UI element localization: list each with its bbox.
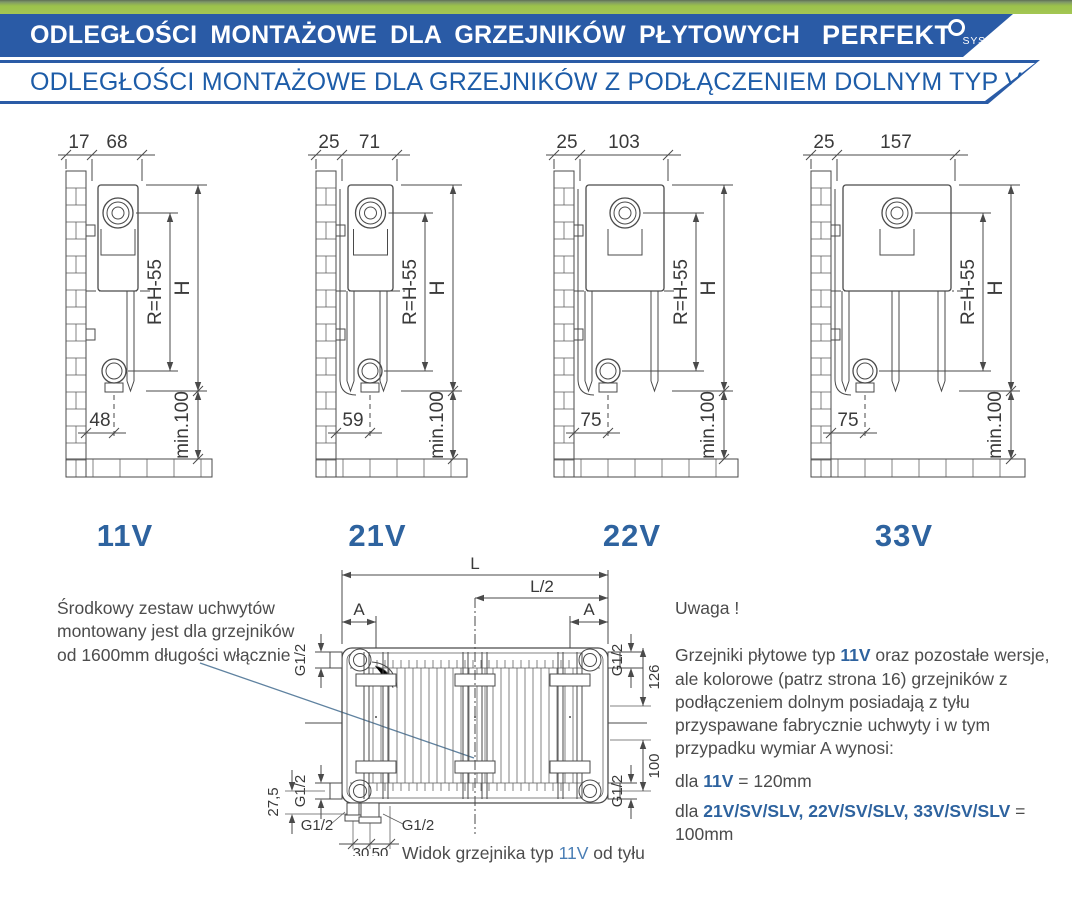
header-banner: ODLEGŁOŚCI MONTAŻOWE DLA GRZEJNIKÓW PŁYT…	[0, 14, 1072, 57]
subtitle-text: ODLEGŁOŚCI MONTAŻOWE DLA GRZEJNIKÓW Z PO…	[30, 60, 1072, 104]
uwaga-line-others: dla 21V/SV/SLV, 22V/SV/SLV, 33V/SV/SLV =…	[675, 800, 1067, 847]
diagram-33v-svg: 25157R=H-55Hmin.10075	[775, 133, 1033, 505]
panel-tip	[842, 381, 849, 391]
floor	[316, 459, 467, 477]
dim-label: 48	[89, 410, 110, 431]
panel-tip	[380, 381, 387, 391]
dim-arrow	[628, 774, 634, 783]
connection-circle	[349, 780, 371, 802]
connection-circle	[349, 649, 371, 671]
type-label-33v: 33V	[775, 518, 1033, 554]
dim-arrow	[1008, 185, 1014, 194]
return-circle	[600, 363, 616, 379]
bracket-dot	[474, 716, 476, 718]
return-circle	[857, 363, 873, 379]
dim-label: 100	[646, 753, 663, 778]
dim-arrow	[475, 595, 484, 601]
return-stub	[105, 383, 123, 392]
uwaga-para-type: 11V	[840, 645, 870, 665]
valve-housing	[880, 229, 914, 255]
valve-circle	[619, 207, 631, 219]
dim-label: G1/2	[609, 644, 626, 677]
radiator-header	[98, 185, 138, 291]
radiator-header	[348, 185, 393, 291]
dim-arrow	[195, 450, 201, 459]
valve-housing	[608, 229, 642, 255]
dim-label: G1/2	[292, 644, 309, 677]
dim-arrow	[640, 697, 646, 706]
valve-circle	[886, 202, 908, 224]
dim-arrow	[342, 619, 351, 625]
dim-label: 126	[646, 664, 663, 689]
uwaga-11v-types: 11V	[703, 771, 733, 791]
dim-label: 25	[813, 133, 834, 153]
dim-label: min.100	[698, 391, 719, 459]
diagram-22v-svg: 25103R=H-55Hmin.10075	[518, 133, 746, 505]
page-title: ODLEGŁOŚCI MONTAŻOWE DLA GRZEJNIKÓW PŁYT…	[30, 21, 800, 50]
dim-arrow	[318, 643, 324, 652]
type-label-11v: 11V	[30, 518, 220, 554]
dim-arrow	[318, 774, 324, 783]
dim-arrow	[980, 362, 986, 371]
valve-circle	[360, 202, 382, 224]
dim-arrow	[721, 382, 727, 391]
dim-arrow	[721, 391, 727, 400]
panel-tip	[938, 381, 945, 391]
dim-label: G1/2	[402, 817, 435, 834]
dim-label: 25	[318, 133, 339, 153]
dim-label: L	[470, 556, 479, 573]
dim-label: 75	[837, 410, 858, 431]
logo-subtext: SYSTEM	[963, 35, 1011, 47]
dim-label: min.100	[172, 391, 193, 459]
dim-arrow	[318, 799, 324, 808]
dim-label: 75	[580, 410, 601, 431]
dim-label: 71	[359, 133, 380, 153]
green-strip	[0, 0, 1072, 14]
type-label-22v: 22V	[518, 518, 746, 554]
dim-arrow	[422, 213, 428, 222]
wall-bracket	[86, 225, 95, 236]
dim-label: 68	[106, 133, 127, 153]
dim-arrow	[450, 391, 456, 400]
uwaga-title: Uwaga !	[675, 597, 1067, 620]
return-stub	[856, 383, 874, 392]
dim-arrow	[167, 362, 173, 371]
uwaga-11v-pre: dla	[675, 771, 703, 791]
dim-arrow	[980, 213, 986, 222]
dim-label: min.100	[427, 391, 448, 459]
dim-label: 27,5	[265, 787, 282, 816]
dim-label: R=H-55	[400, 259, 421, 325]
dim-arrow	[693, 362, 699, 371]
dim-arrow	[628, 643, 634, 652]
dim-arrow	[167, 213, 173, 222]
dim-label: H	[171, 280, 194, 295]
uwaga-para-pre: Grzejniki płytowe typ	[675, 645, 840, 665]
panel-tip	[585, 381, 592, 391]
dim-arrow	[318, 668, 324, 677]
bracket-dot	[569, 716, 571, 718]
dim-arrow	[599, 619, 608, 625]
floor	[554, 459, 738, 477]
connection-flange	[330, 652, 342, 668]
dim-label: A	[583, 600, 595, 619]
valve-circle	[365, 207, 377, 219]
bottom-stub	[347, 803, 359, 815]
stub-leader	[383, 814, 403, 824]
dim-arrow	[721, 450, 727, 459]
dim-arrow	[570, 619, 579, 625]
floor	[811, 459, 1025, 477]
dim-label: G1/2	[301, 817, 334, 834]
valve-circle	[107, 202, 129, 224]
dim-arrow	[1008, 382, 1014, 391]
dim-arrow	[450, 382, 456, 391]
dim-arrow	[628, 799, 634, 808]
dim-label: H	[984, 280, 1007, 295]
diagram-33v: 25157R=H-55Hmin.10075 33V	[775, 133, 1033, 554]
floor	[66, 459, 212, 477]
caption-type: 11V	[559, 843, 589, 863]
dim-label: 103	[608, 133, 640, 153]
dim-label: R=H-55	[958, 259, 979, 325]
connection-flange	[330, 783, 342, 799]
caption-post: od tyłu	[588, 843, 644, 863]
dim-label: 50	[372, 845, 389, 856]
panel-tip	[651, 381, 658, 391]
dim-arrow	[599, 572, 608, 578]
uwaga-11v-post: = 120mm	[733, 771, 811, 791]
dim-label: R=H-55	[671, 259, 692, 325]
bracket-plate	[550, 761, 590, 773]
uwaga-others-pre: dla	[675, 801, 703, 821]
diagram-11v: 1768R=H-55Hmin.10048 11V	[30, 133, 220, 554]
dim-arrow	[640, 740, 646, 749]
dim-label: 17	[68, 133, 89, 153]
dim-label: 157	[880, 133, 912, 153]
panel-tip	[127, 381, 134, 391]
uwaga-block: Uwaga ! Grzejniki płytowe typ 11V oraz p…	[675, 597, 1067, 846]
dim-label: L/2	[530, 577, 554, 596]
dim-label: H	[697, 280, 720, 295]
dim-arrow	[693, 213, 699, 222]
valve-housing	[101, 229, 135, 255]
valve-circle	[112, 207, 124, 219]
dim-arrow	[195, 382, 201, 391]
bracket-plate	[356, 761, 396, 773]
logo-text: PERFEKT	[822, 22, 952, 49]
bottom-stub-flange	[359, 817, 381, 823]
page: ODLEGŁOŚCI MONTAŻOWE DLA GRZEJNIKÓW PŁYT…	[0, 0, 1072, 898]
dim-arrow	[195, 185, 201, 194]
radiator-header	[843, 185, 951, 291]
dim-arrow	[1008, 391, 1014, 400]
wall-bracket	[86, 329, 95, 340]
panel-tip	[892, 381, 899, 391]
bracket-plate	[356, 674, 396, 686]
dim-label: R=H-55	[145, 259, 166, 325]
bottom-stub	[361, 803, 379, 817]
type-label-21v: 21V	[280, 518, 475, 554]
dim-arrow	[195, 391, 201, 400]
valve-circle	[614, 202, 636, 224]
dim-arrow	[422, 362, 428, 371]
diagram-21v-svg: 2571R=H-55Hmin.10059	[280, 133, 475, 505]
dim-arrow	[628, 668, 634, 677]
dim-label: 30	[353, 845, 370, 856]
dim-arrow	[289, 814, 295, 823]
rear-view-caption: Widok grzejnika typ 11V od tyłu	[402, 843, 645, 864]
dim-label: min.100	[985, 391, 1006, 459]
uwaga-line-11v: dla 11V = 120mm	[675, 770, 1067, 793]
rear-view-svg: LL/2AAG1/2G1/227,5G1/2126G1/2100G1/2G1/2…	[265, 556, 670, 856]
dim-arrow	[640, 782, 646, 791]
dim-arrow	[450, 185, 456, 194]
dim-arrow	[721, 185, 727, 194]
dim-label: H	[426, 280, 449, 295]
valve-housing	[354, 229, 388, 255]
dim-arrow	[342, 572, 351, 578]
return-circle	[106, 363, 122, 379]
diagram-21v: 2571R=H-55Hmin.10059 21V	[280, 133, 475, 554]
caption-pre: Widok grzejnika typ	[402, 843, 559, 863]
valve-circle	[891, 207, 903, 219]
dim-label: 25	[556, 133, 577, 153]
perfekt-logo: PERFEKT SYSTEM	[822, 22, 1011, 49]
bracket-plate	[550, 674, 590, 686]
uwaga-paragraph: Grzejniki płytowe typ 11V oraz pozostałe…	[675, 644, 1067, 760]
radiator-header	[586, 185, 664, 291]
panel-tip	[347, 381, 354, 391]
return-stub	[361, 383, 379, 392]
return-circle	[362, 363, 378, 379]
uwaga-others-types: 21V/SV/SLV, 22V/SV/SLV, 33V/SV/SLV	[703, 801, 1010, 821]
dim-arrow	[1008, 450, 1014, 459]
dim-arrow	[450, 450, 456, 459]
logo-circle-icon	[948, 19, 965, 36]
subtitle-banner: ODLEGŁOŚCI MONTAŻOWE DLA GRZEJNIKÓW Z PO…	[0, 60, 1072, 104]
dim-arrow	[599, 595, 608, 601]
dim-label: A	[353, 600, 365, 619]
dim-arrow	[367, 619, 376, 625]
diagram-22v: 25103R=H-55Hmin.10075 22V	[518, 133, 746, 554]
bracket-dot	[375, 716, 377, 718]
return-stub	[599, 383, 617, 392]
dim-label: 59	[342, 410, 363, 431]
diagram-11v-svg: 1768R=H-55Hmin.10048	[30, 133, 220, 505]
